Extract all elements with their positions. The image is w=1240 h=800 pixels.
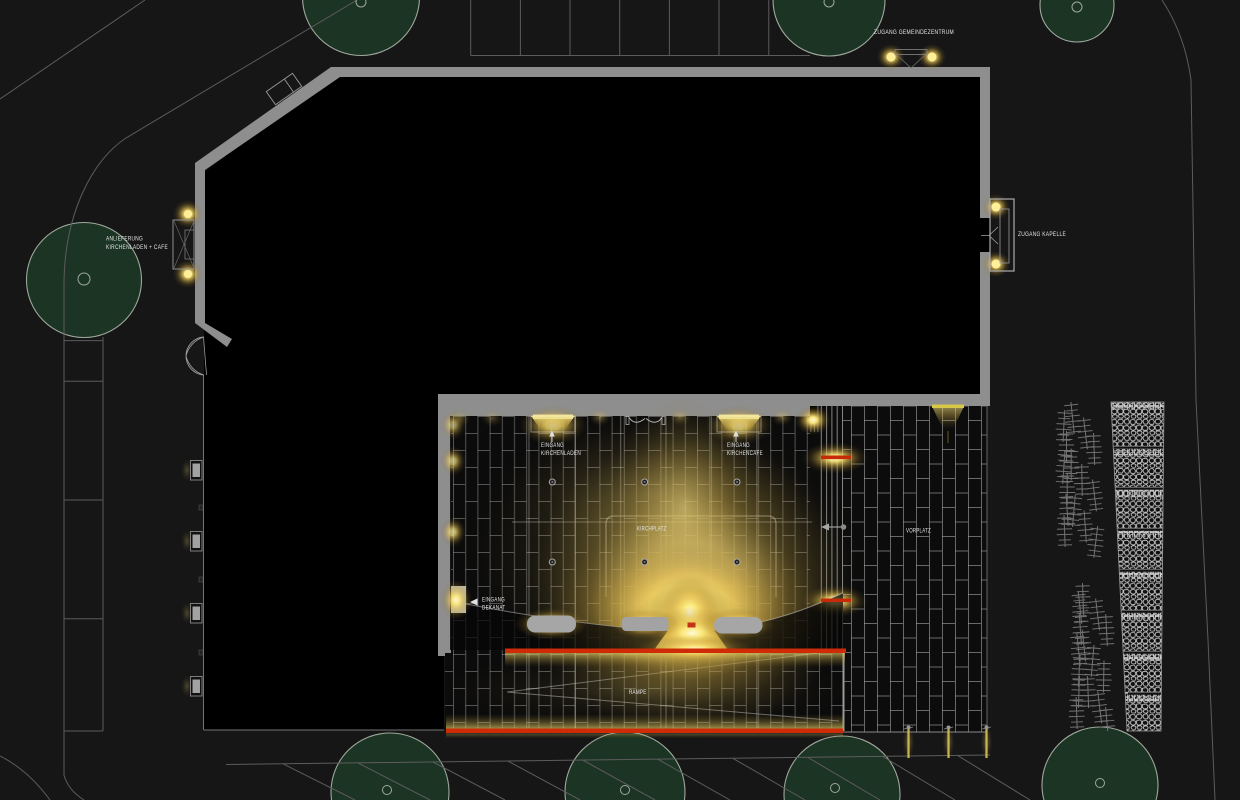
svg-text:EINGANG: EINGANG xyxy=(727,443,750,449)
svg-text:VORPLATZ: VORPLATZ xyxy=(906,529,931,535)
svg-text:KIRCHENLADEN: KIRCHENLADEN xyxy=(541,451,581,457)
svg-text:EINGANG: EINGANG xyxy=(482,598,505,604)
svg-text:EINGANG: EINGANG xyxy=(541,443,564,449)
svg-text:KIRCHENLADEN + CAFE: KIRCHENLADEN + CAFE xyxy=(106,245,168,251)
svg-text:ANLIEFERUNG: ANLIEFERUNG xyxy=(106,237,143,243)
svg-text:ZUGANG KAPELLE: ZUGANG KAPELLE xyxy=(1018,231,1066,238)
svg-text:KIRCHENCAFE: KIRCHENCAFE xyxy=(727,451,763,457)
svg-text:DEKANAT: DEKANAT xyxy=(482,606,506,612)
svg-text:ZUGANG GEMEINDEZENTRUM: ZUGANG GEMEINDEZENTRUM xyxy=(874,29,954,36)
svg-text:KIRCHPLATZ: KIRCHPLATZ xyxy=(637,527,667,533)
svg-text:RAMPE: RAMPE xyxy=(629,690,647,696)
